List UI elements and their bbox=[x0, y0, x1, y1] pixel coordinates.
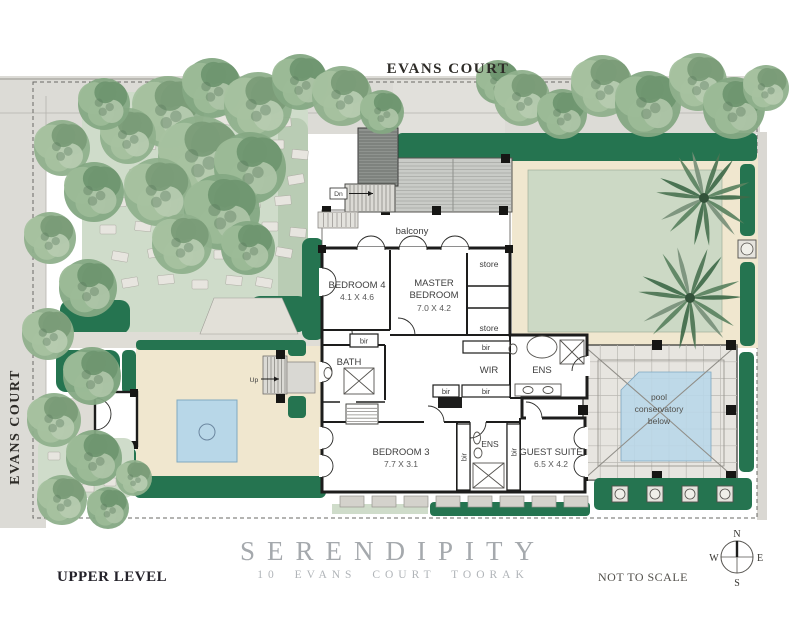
stair-dn-label: Dn bbox=[334, 191, 343, 198]
bir-label-3: bir bbox=[442, 387, 451, 396]
courtyard bbox=[122, 340, 326, 498]
balcony-label: balcony bbox=[396, 226, 429, 237]
master-name-1: MASTER bbox=[414, 278, 454, 289]
compass-s: S bbox=[734, 578, 740, 589]
pool-note-3: below bbox=[648, 416, 671, 426]
level-label: UPPER LEVEL bbox=[57, 569, 167, 585]
master-name-2: BEDROOM bbox=[409, 290, 458, 301]
guest-suite-dims: 6.5 X 4.2 bbox=[534, 459, 568, 469]
bir-label-4: bir bbox=[482, 387, 491, 396]
bedroom3-dims: 7.7 X 3.1 bbox=[384, 459, 418, 469]
pool-note-2: conservatory bbox=[635, 404, 684, 414]
bir-label-6: bir bbox=[510, 447, 519, 456]
ens-master-label: ENS bbox=[532, 365, 552, 376]
floorplan-image: balcony Dn Up BEDROOM 4 4.1 X 4.6 MASTER… bbox=[0, 0, 800, 618]
pool-note-1: pool bbox=[651, 392, 667, 402]
compass-n: N bbox=[733, 529, 740, 540]
bedroom4-name: BEDROOM 4 bbox=[328, 280, 385, 291]
guest-suite-name: GUEST SUITE bbox=[519, 447, 582, 458]
water-feature bbox=[177, 400, 237, 462]
compass-w: W bbox=[709, 553, 719, 564]
floorplan-page: balcony Dn Up BEDROOM 4 4.1 X 4.6 MASTER… bbox=[0, 0, 800, 618]
plan-subtitle: 10 EVANS COURT TOORAK bbox=[257, 569, 529, 581]
bath-label: BATH bbox=[337, 357, 362, 368]
street-label-top: EVANS COURT bbox=[387, 61, 510, 77]
neighbour-strip bbox=[757, 132, 767, 520]
bir-label-5: bir bbox=[460, 452, 469, 461]
bedroom4-dims: 4.1 X 4.6 bbox=[340, 292, 374, 302]
bir-label-2: bir bbox=[482, 343, 491, 352]
ens-guest-label: ENS bbox=[481, 439, 499, 449]
stair-up-label: Up bbox=[250, 377, 259, 384]
wir-label: WIR bbox=[480, 365, 499, 376]
street-label-left: EVANS COURT bbox=[8, 369, 23, 485]
store-lower-label: store bbox=[480, 323, 499, 333]
bir-label-1: bir bbox=[360, 337, 369, 346]
compass-e: E bbox=[757, 553, 763, 564]
bedroom3-name: BEDROOM 3 bbox=[372, 447, 429, 458]
plan-title: SERENDIPITY bbox=[240, 536, 546, 566]
scale-note: NOT TO SCALE bbox=[598, 570, 688, 584]
store-upper-label: store bbox=[480, 259, 499, 269]
master-dims: 7.0 X 4.2 bbox=[417, 303, 451, 313]
